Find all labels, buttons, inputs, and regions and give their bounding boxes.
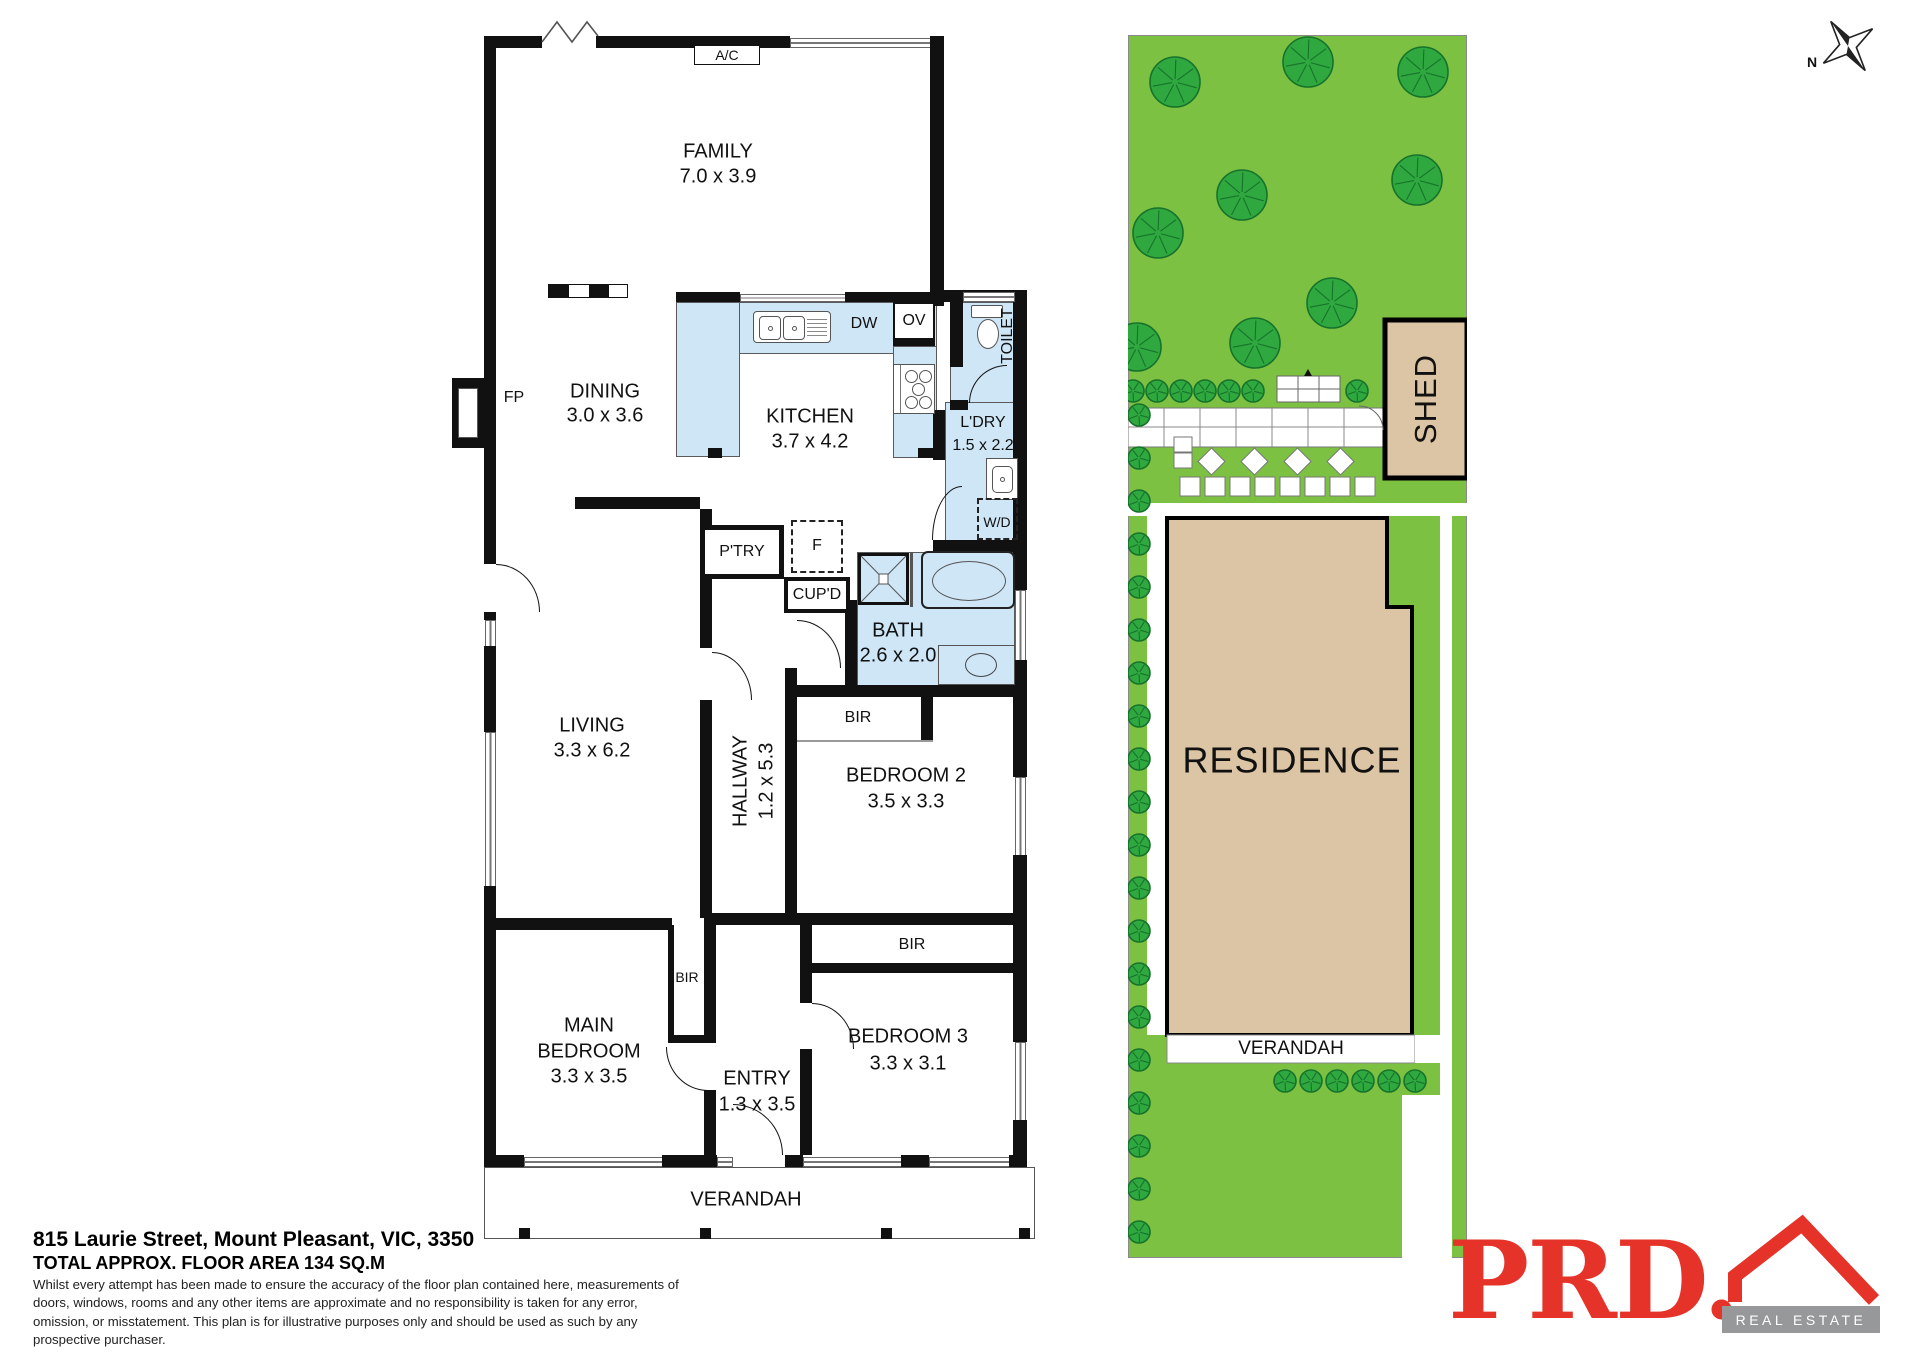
trough-drain bbox=[1000, 477, 1005, 482]
fireplace-opening bbox=[458, 388, 478, 438]
bush-icon bbox=[1352, 1070, 1374, 1092]
tree-icon bbox=[1133, 208, 1183, 258]
front-path bbox=[1402, 1095, 1452, 1258]
bush-icon bbox=[1274, 1070, 1296, 1092]
tree-icon bbox=[1150, 57, 1200, 107]
room-label-verandah: VERANDAH bbox=[690, 1189, 801, 1212]
bush-icon bbox=[1326, 1070, 1348, 1092]
room-label-toilet: TOILET bbox=[999, 308, 1017, 364]
bush-icon bbox=[1128, 1135, 1150, 1157]
kitchen-bench-stub bbox=[918, 448, 933, 458]
bush-icon bbox=[1128, 1006, 1150, 1028]
verandah-post bbox=[700, 1228, 711, 1239]
toilet-bowl-icon bbox=[977, 319, 999, 349]
sink-basin bbox=[783, 316, 805, 340]
tree-icon bbox=[1392, 155, 1442, 205]
bush-icon bbox=[1128, 963, 1150, 985]
tree-icon bbox=[1230, 318, 1280, 368]
wall bbox=[662, 1155, 717, 1167]
tree-icon bbox=[1307, 278, 1357, 328]
bush-icon bbox=[1128, 404, 1150, 426]
tree-icon bbox=[1217, 170, 1267, 220]
sink-basin bbox=[759, 316, 781, 340]
room-label-dining: DINING bbox=[570, 381, 640, 404]
wall bbox=[575, 497, 700, 509]
trough-basin bbox=[992, 466, 1013, 493]
wall bbox=[704, 1090, 716, 1155]
wall bbox=[845, 600, 857, 697]
label-bir-bedroom3: BIR bbox=[899, 936, 926, 954]
room-size-family: 7.0 x 3.9 bbox=[680, 166, 757, 189]
label-fridge: F bbox=[812, 537, 822, 555]
room-label-bedroom3: BEDROOM 3 bbox=[848, 1026, 968, 1049]
room-label-bedroom2: BEDROOM 2 bbox=[846, 765, 966, 788]
room-size-laundry: 1.5 x 2.2 bbox=[952, 437, 1013, 455]
floorplan-page: FAMILY 7.0 x 3.9 A/C DINING 3.0 x 3.6 FP… bbox=[0, 0, 1920, 1358]
bush-icon bbox=[1128, 533, 1150, 555]
wall bbox=[845, 292, 952, 302]
property-address: 815 Laurie Street, Mount Pleasant, VIC, … bbox=[33, 1228, 474, 1252]
verandah-path-connector bbox=[1415, 1035, 1452, 1063]
wall bbox=[484, 612, 496, 620]
room-label-kitchen: KITCHEN bbox=[766, 406, 854, 429]
wall bbox=[785, 685, 1027, 697]
wall bbox=[676, 292, 740, 302]
room-size-main-bedroom: 3.3 x 3.5 bbox=[551, 1066, 628, 1089]
room-size-dining: 3.0 x 3.6 bbox=[567, 405, 644, 428]
laundry-trough bbox=[986, 458, 1018, 500]
bush-icon bbox=[1128, 705, 1150, 727]
label-oven: OV bbox=[902, 312, 925, 330]
bush-icon bbox=[1128, 662, 1150, 684]
bush-icon bbox=[1300, 1070, 1322, 1092]
room-size-kitchen: 3.7 x 4.2 bbox=[772, 431, 849, 454]
label-dishwasher: DW bbox=[851, 315, 878, 333]
wall bbox=[800, 1049, 812, 1155]
bush-icon bbox=[1128, 748, 1150, 770]
room-size-bedroom3: 3.3 x 3.1 bbox=[870, 1053, 947, 1076]
bush-icon bbox=[1128, 877, 1150, 899]
bush-icon bbox=[1128, 1221, 1150, 1243]
prd-roof-icon bbox=[1722, 1210, 1882, 1306]
window bbox=[717, 1157, 733, 1167]
bush-icon bbox=[1404, 1070, 1426, 1092]
compass-north-label: N bbox=[1807, 54, 1817, 70]
room-size-bath: 2.6 x 2.0 bbox=[860, 645, 937, 668]
window bbox=[803, 1157, 903, 1167]
window bbox=[963, 292, 1015, 302]
cooktop-edge bbox=[900, 365, 901, 413]
wall bbox=[930, 36, 944, 306]
wall bbox=[893, 340, 935, 346]
kitchen-bench-stub bbox=[708, 448, 722, 458]
wall bbox=[1013, 1120, 1027, 1167]
room-label-bath: BATH bbox=[872, 620, 924, 643]
wall bbox=[1013, 660, 1027, 777]
side-path-left bbox=[1147, 516, 1167, 1035]
site-label-verandah: VERANDAH bbox=[1238, 1038, 1344, 1060]
wall-break-zigzag-icon bbox=[540, 16, 600, 48]
disclaimer-text: Whilst every attempt has been made to en… bbox=[33, 1276, 693, 1350]
wall bbox=[596, 36, 790, 48]
bush-icon bbox=[1218, 380, 1240, 402]
sink-drain bbox=[792, 326, 797, 331]
wall bbox=[1013, 855, 1027, 1042]
label-cupboard: CUP'D bbox=[793, 586, 841, 604]
vanity bbox=[938, 645, 1015, 685]
verandah-post bbox=[881, 1228, 892, 1239]
label-ac: A/C bbox=[715, 47, 738, 63]
wall bbox=[668, 1035, 716, 1043]
door-arc bbox=[797, 620, 841, 668]
room-label-hallway: HALLWAY bbox=[730, 735, 753, 827]
door-arc bbox=[932, 486, 962, 540]
wall bbox=[950, 400, 968, 410]
window bbox=[1015, 1042, 1026, 1122]
bush-icon bbox=[1128, 920, 1150, 942]
site-plan bbox=[1128, 35, 1467, 1258]
bush-icon bbox=[1128, 1178, 1150, 1200]
window bbox=[1015, 590, 1026, 662]
window bbox=[524, 1157, 664, 1167]
sink-icon bbox=[753, 311, 831, 343]
wall bbox=[933, 410, 945, 460]
tree-icon bbox=[1283, 37, 1333, 87]
compass-icon bbox=[1798, 12, 1890, 88]
room-label-laundry: L'DRY bbox=[960, 414, 1005, 432]
wall bbox=[484, 918, 672, 930]
door-arc bbox=[496, 564, 540, 612]
bush-icon bbox=[1128, 576, 1150, 598]
wall bbox=[484, 1155, 524, 1167]
wall bbox=[901, 1155, 929, 1167]
window bbox=[485, 620, 496, 648]
room-label-entry: ENTRY bbox=[723, 1068, 790, 1091]
verandah-post bbox=[1019, 1228, 1030, 1239]
room-size-entry: 1.3 x 3.5 bbox=[719, 1094, 796, 1117]
wall bbox=[668, 925, 674, 1035]
bush-icon bbox=[1128, 791, 1150, 813]
prd-logo-text: PRD. bbox=[1448, 1218, 1738, 1344]
tree-icon bbox=[1398, 47, 1448, 97]
bush-icon bbox=[1346, 380, 1368, 402]
sink-drain bbox=[768, 326, 773, 331]
label-pantry: P'TRY bbox=[719, 543, 764, 561]
wall bbox=[921, 685, 933, 742]
label-bir-bedroom2: BIR bbox=[845, 709, 872, 727]
door-arc bbox=[712, 652, 752, 700]
room-label-main-bedroom-1: MAIN bbox=[564, 1015, 614, 1038]
room-label-living: LIVING bbox=[559, 715, 625, 738]
wall bbox=[950, 302, 963, 367]
bath-divider bbox=[910, 552, 913, 607]
bush-icon bbox=[1146, 380, 1168, 402]
room-label-family: FAMILY bbox=[683, 141, 753, 164]
wall bbox=[704, 913, 1027, 925]
cross-path bbox=[1128, 503, 1467, 516]
wall bbox=[800, 925, 812, 1003]
kitchen-bench-left bbox=[676, 302, 740, 457]
wall bbox=[812, 963, 1013, 973]
room-size-living: 3.3 x 6.2 bbox=[554, 740, 631, 763]
bathtub-icon bbox=[921, 551, 1015, 609]
site-label-shed: SHED bbox=[1408, 354, 1444, 444]
label-fireplace: FP bbox=[504, 389, 524, 407]
label-washer-dryer: W/D bbox=[983, 514, 1010, 530]
bush-icon bbox=[1128, 619, 1150, 641]
verandah-post bbox=[519, 1228, 530, 1239]
door-arc bbox=[666, 1047, 708, 1091]
room-label-main-bedroom-2: BEDROOM bbox=[537, 1041, 640, 1064]
bush-icon bbox=[1378, 1070, 1400, 1092]
bush-icon bbox=[1128, 1092, 1150, 1114]
bush-icon bbox=[1128, 834, 1150, 856]
cooktop-icon bbox=[893, 364, 935, 414]
bush-icon bbox=[1194, 380, 1216, 402]
bush-icon bbox=[1242, 380, 1264, 402]
vanity-basin-icon bbox=[965, 653, 997, 677]
bathtub-basin bbox=[932, 561, 1006, 601]
window bbox=[740, 294, 847, 302]
half-wall-window bbox=[548, 284, 628, 298]
bush-icon bbox=[1128, 380, 1144, 402]
wall bbox=[484, 460, 496, 564]
prd-tagline-bar: REAL ESTATE bbox=[1722, 1306, 1880, 1333]
window bbox=[929, 1157, 1011, 1167]
label-bir-main: BIR bbox=[675, 969, 698, 985]
floor-area-text: TOTAL APPROX. FLOOR AREA 134 SQ.M bbox=[33, 1253, 385, 1274]
wall bbox=[700, 700, 712, 918]
room-size-hallway: 1.2 x 5.3 bbox=[756, 743, 779, 820]
wall bbox=[785, 668, 797, 918]
wall bbox=[484, 646, 496, 732]
window bbox=[790, 38, 932, 48]
bush-icon bbox=[1170, 380, 1192, 402]
wall bbox=[785, 1155, 803, 1167]
window bbox=[485, 732, 496, 888]
bush-icon bbox=[1128, 1049, 1150, 1071]
window bbox=[1015, 777, 1026, 857]
robe-front-line bbox=[797, 740, 933, 742]
bush-icon bbox=[1128, 447, 1150, 469]
bush-icon bbox=[1128, 490, 1150, 512]
wall bbox=[704, 925, 716, 1043]
site-label-residence: RESIDENCE bbox=[1182, 739, 1401, 780]
shower-icon bbox=[858, 553, 909, 605]
sink-drainer bbox=[807, 316, 827, 338]
room-size-bedroom2: 3.5 x 3.3 bbox=[868, 791, 945, 814]
